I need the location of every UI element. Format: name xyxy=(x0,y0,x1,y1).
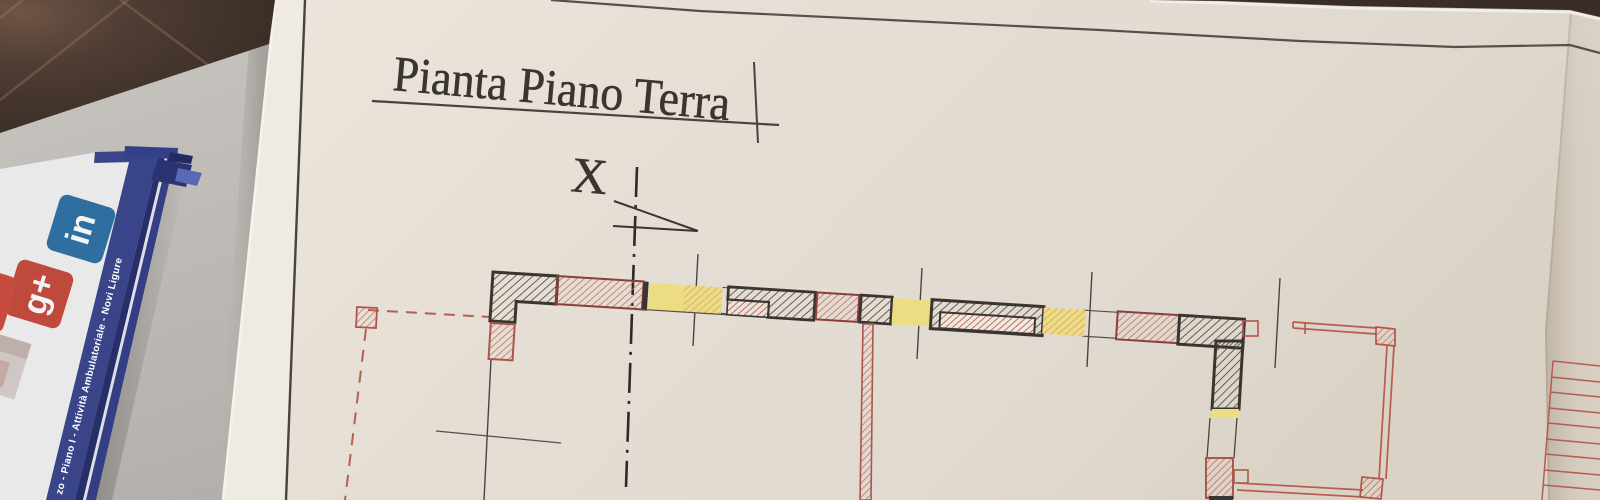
svg-text:X: X xyxy=(569,146,610,205)
